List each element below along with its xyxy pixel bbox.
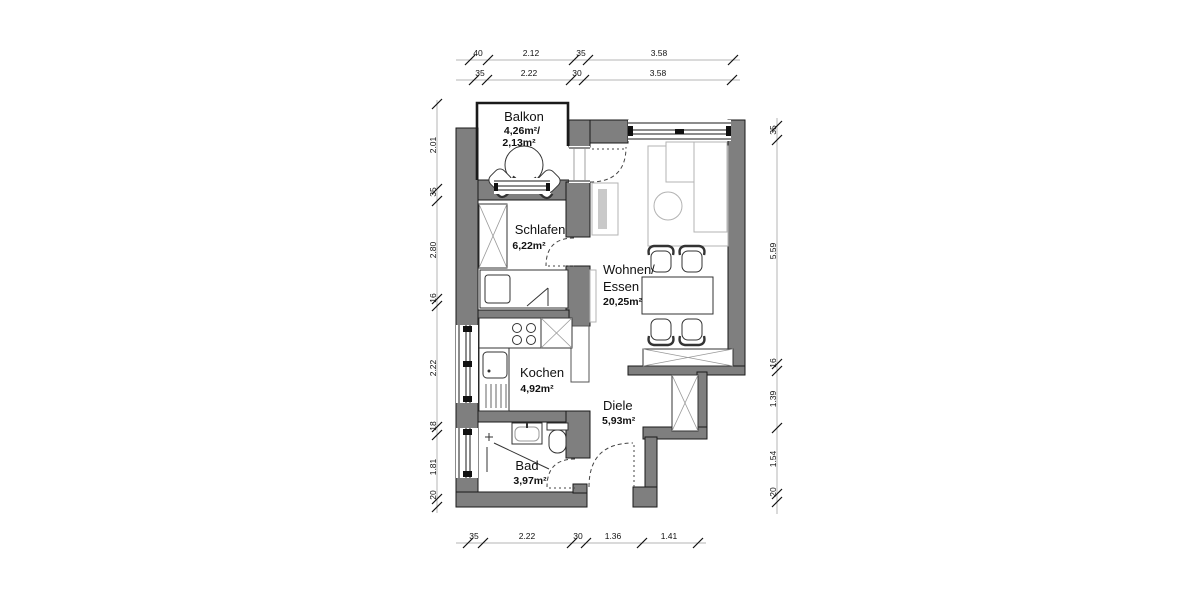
wall-step-vertical xyxy=(645,437,657,490)
dim-label: 18 xyxy=(428,421,438,431)
window-bad xyxy=(456,428,478,478)
dim-label: 1.81 xyxy=(428,458,438,475)
dim-label: 2.22 xyxy=(519,531,536,541)
room-area-balkon-2: 2,13m² xyxy=(502,137,536,149)
toilet-bowl xyxy=(549,430,566,453)
stove-burner xyxy=(513,324,522,333)
wall-living-bottom xyxy=(628,366,745,375)
window-cap xyxy=(494,183,498,191)
dim-label: 16 xyxy=(768,358,778,368)
dim-label: 35 xyxy=(768,125,778,135)
dining-table xyxy=(642,277,713,314)
bed-pillow xyxy=(485,275,510,303)
window-cap xyxy=(675,129,684,134)
room-label-schlafen: Schlafen xyxy=(515,222,566,237)
window-cap xyxy=(463,396,472,402)
stove-burner xyxy=(527,336,536,345)
wall-kochen-bad-divider xyxy=(478,411,568,422)
dim-label: 16 xyxy=(428,293,438,303)
room-label-balkon: Balkon xyxy=(504,109,544,124)
dim-label: 35 xyxy=(475,68,485,78)
room-label-bad: Bad xyxy=(515,458,538,473)
room-label-essen: Essen xyxy=(603,279,639,294)
room-area-kochen: 4,92m² xyxy=(520,383,554,395)
room-area-bad: 3,97m² xyxy=(513,475,547,487)
stove-burner xyxy=(527,324,536,333)
window-schlafen xyxy=(494,178,550,194)
kitchen-sink xyxy=(483,352,507,378)
dim-label: 30 xyxy=(572,68,582,78)
dim-label: 3.58 xyxy=(650,68,667,78)
dim-label: 30 xyxy=(573,531,583,541)
wall-entry-stub xyxy=(633,487,657,507)
radiator-fins xyxy=(598,189,607,229)
window-cap xyxy=(463,429,472,435)
floor-plan-canvas: 40 2.12 35 3.58 35 2.22 30 3.58 2.01 35 … xyxy=(0,0,1200,600)
dim-label: 40 xyxy=(473,48,483,58)
wall-right xyxy=(728,120,745,375)
dining-chair xyxy=(649,319,674,345)
room-label-kochen: Kochen xyxy=(520,365,564,380)
window-cap xyxy=(628,126,633,136)
window-kochen xyxy=(456,325,478,403)
door-opening xyxy=(569,146,590,183)
window-cap xyxy=(726,126,731,136)
background xyxy=(0,0,1200,600)
room-area-schlafen: 6,22m² xyxy=(512,240,546,252)
dim-label: 1.36 xyxy=(605,531,622,541)
sofa-chaise-section xyxy=(694,142,727,232)
radiator xyxy=(590,270,596,322)
room-label-wohnen: Wohnen/ xyxy=(603,262,655,277)
wall-schlafen-living-lower xyxy=(566,266,590,326)
wall-corridor-top xyxy=(569,120,590,147)
room-area-balkon: 4,26m²/ xyxy=(504,125,540,137)
dim-label: 2.22 xyxy=(521,68,538,78)
window-cap xyxy=(463,361,472,367)
dim-label: 20 xyxy=(428,490,438,500)
dim-label: 2.22 xyxy=(428,359,438,376)
bed xyxy=(480,270,568,308)
dim-label: 1.54 xyxy=(768,450,778,467)
stove-burner xyxy=(513,336,522,345)
coffee-table xyxy=(654,192,682,220)
dim-label: 35 xyxy=(428,187,438,197)
dining-chair xyxy=(680,246,705,272)
window-cap xyxy=(546,183,550,191)
dining-chair xyxy=(680,319,705,345)
dim-label: 1.39 xyxy=(768,390,778,407)
dim-label: 20 xyxy=(768,487,778,497)
wall-schlafen-kochen-divider xyxy=(478,310,569,318)
wall-schlafen-living-upper xyxy=(566,182,590,237)
room-label-diele: Diele xyxy=(603,398,633,413)
dim-label: 2.01 xyxy=(428,136,438,153)
toilet-tank xyxy=(547,423,568,430)
dim-label: 1.41 xyxy=(661,531,678,541)
window-cap xyxy=(463,471,472,477)
tall-cabinet xyxy=(571,326,589,382)
dim-label: 35 xyxy=(576,48,586,58)
door-opening xyxy=(566,238,590,265)
dim-label: 5.59 xyxy=(768,242,778,259)
dim-label: 2.12 xyxy=(523,48,540,58)
window-cap xyxy=(463,326,472,332)
wall-bottom xyxy=(456,492,587,507)
room-area-wohnen: 20,25m² xyxy=(603,296,643,308)
dim-label: 2.80 xyxy=(428,241,438,258)
wall-bad-right xyxy=(566,411,590,458)
wall-door-jamb xyxy=(573,484,587,493)
dim-label: 35 xyxy=(469,531,479,541)
kitchen-faucet xyxy=(488,370,491,373)
room-area-diele: 5,93m² xyxy=(602,415,636,427)
dim-label: 3.58 xyxy=(651,48,668,58)
window-wohnen xyxy=(628,120,731,141)
